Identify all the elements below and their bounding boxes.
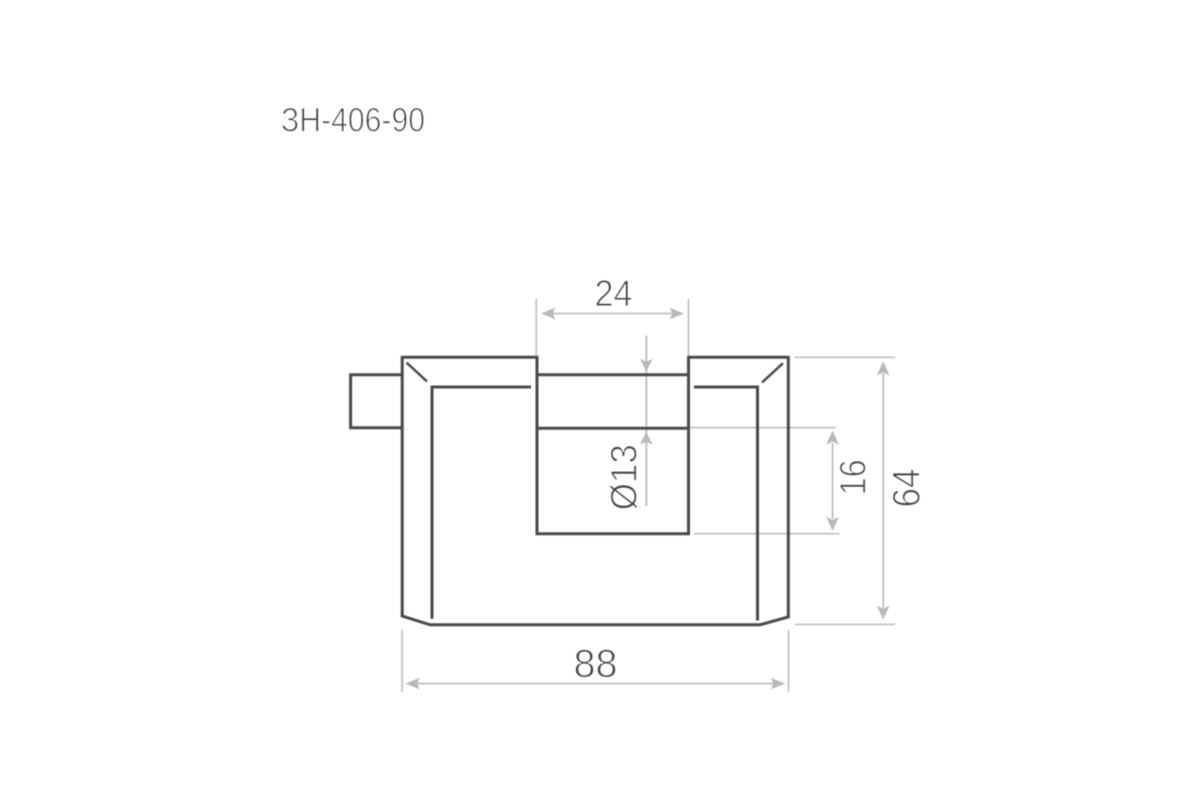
svg-text:24: 24 (595, 272, 633, 314)
svg-text:88: 88 (574, 642, 618, 686)
svg-text:64: 64 (886, 469, 929, 508)
svg-text:Ø13: Ø13 (603, 444, 645, 510)
svg-text:ЗН-406-90: ЗН-406-90 (281, 102, 425, 140)
svg-text:16: 16 (832, 459, 874, 495)
